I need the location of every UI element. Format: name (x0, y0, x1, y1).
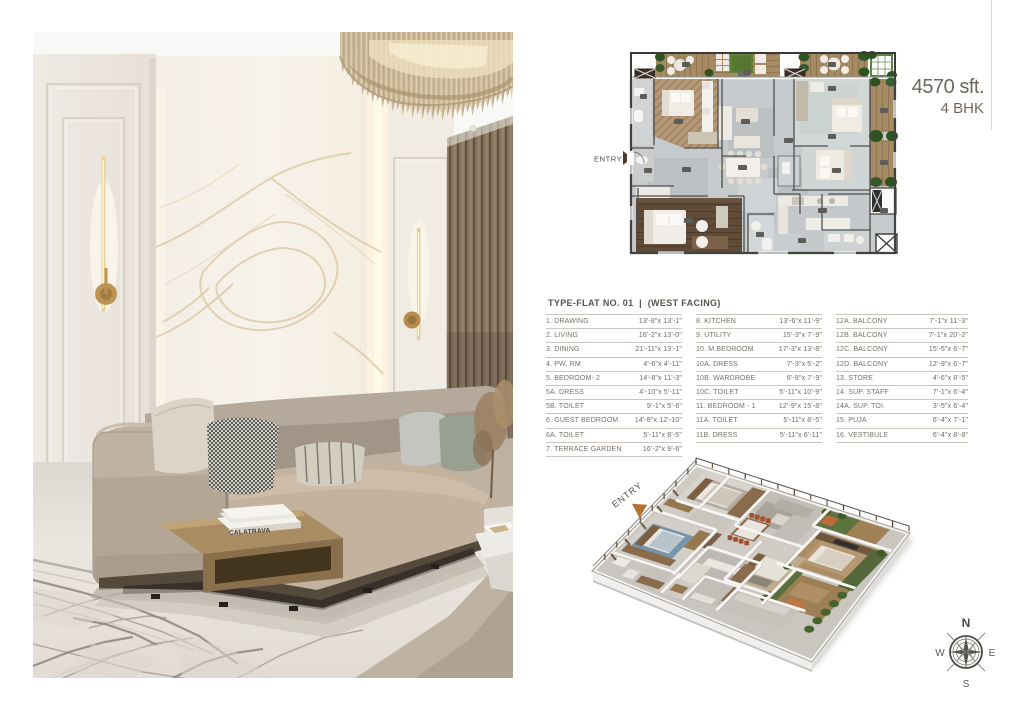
svg-text:W: W (935, 648, 945, 659)
svg-text:E: E (989, 648, 996, 659)
svg-text:S: S (963, 679, 970, 690)
svg-text:N: N (962, 616, 971, 630)
svg-text:ENTRY: ENTRY (594, 155, 622, 164)
